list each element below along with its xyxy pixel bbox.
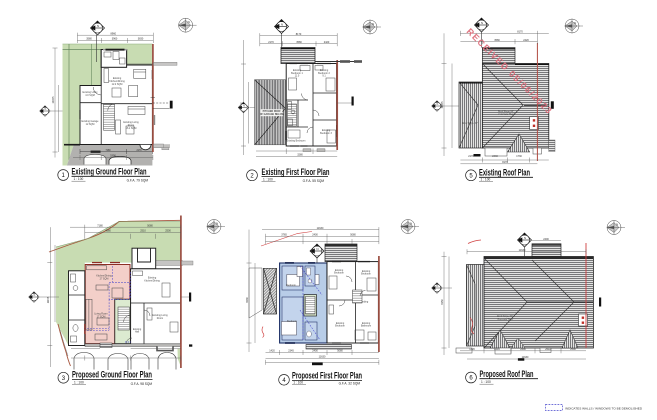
svg-text:3765: 3765 — [281, 234, 287, 237]
svg-text:4.0 SQM: 4.0 SQM — [85, 94, 94, 97]
svg-text:2500: 2500 — [570, 348, 576, 351]
svg-text:Bedroom: Bedroom — [286, 284, 296, 287]
svg-text:3830: 3830 — [138, 38, 144, 41]
svg-text:10155: 10155 — [52, 96, 55, 104]
svg-text:8170: 8170 — [517, 31, 523, 34]
svg-text:12.2 SQM: 12.2 SQM — [112, 83, 123, 86]
svg-text:Bedroom: Bedroom — [287, 320, 297, 323]
svg-text:5390: 5390 — [110, 155, 116, 158]
svg-text:2400: 2400 — [520, 348, 526, 351]
svg-text:1 : 100: 1 : 100 — [481, 178, 491, 182]
svg-text:1420: 1420 — [469, 348, 475, 351]
svg-text:7180: 7180 — [97, 224, 103, 227]
svg-text:OF GARAGE BELOW: OF GARAGE BELOW — [260, 113, 285, 116]
svg-text:G.F.A. 55 SQM: G.F.A. 55 SQM — [303, 179, 325, 183]
svg-text:G.F.A. 98 SQM: G.F.A. 98 SQM — [131, 382, 153, 386]
svg-text:2170: 2170 — [268, 41, 274, 44]
svg-text:3580: 3580 — [86, 38, 92, 41]
svg-text:8170: 8170 — [296, 33, 302, 36]
svg-text:3580: 3580 — [296, 41, 302, 44]
svg-text:11630: 11630 — [319, 356, 326, 359]
svg-text:Existing First Floor Plan: Existing First Floor Plan — [262, 167, 330, 177]
svg-text:11630: 11630 — [519, 249, 526, 252]
svg-text:2170: 2170 — [468, 155, 474, 158]
svg-text:1 : 100: 1 : 100 — [74, 177, 84, 181]
svg-text:10155: 10155 — [441, 101, 444, 109]
svg-text:3280: 3280 — [297, 154, 303, 157]
svg-text:2345: 2345 — [288, 350, 294, 353]
svg-text:Bedroom: Bedroom — [361, 273, 371, 276]
svg-text:Concrete Tiles: Concrete Tiles — [498, 113, 514, 116]
svg-text:Bathroom: Bathroom — [361, 325, 371, 328]
svg-text:8170: 8170 — [502, 161, 508, 164]
svg-text:1730: 1730 — [516, 155, 522, 158]
svg-text:5080: 5080 — [350, 234, 356, 237]
svg-text:INDICATES WALLS / WINDOWS TO B: INDICATES WALLS / WINDOWS TO BE DEMOLISH… — [565, 407, 643, 411]
svg-text:G.F.A. 79 SQM: G.F.A. 79 SQM — [127, 179, 149, 183]
svg-text:16.1 SQM: 16.1 SQM — [126, 127, 137, 130]
svg-text:3580: 3580 — [494, 39, 500, 42]
svg-text:Concrete Tiles: Concrete Tiles — [497, 318, 513, 321]
svg-text:2510: 2510 — [140, 230, 146, 233]
svg-text:Bedroom: Bedroom — [335, 325, 345, 328]
svg-text:3960: 3960 — [112, 38, 118, 41]
svg-text:27 SQM: 27 SQM — [100, 278, 109, 281]
svg-text:Proposed First Floor Plan: Proposed First Floor Plan — [292, 370, 362, 380]
svg-text:2400: 2400 — [312, 234, 318, 237]
svg-text:8960: 8960 — [111, 32, 117, 35]
svg-text:9150: 9150 — [441, 299, 444, 305]
svg-text:2420: 2420 — [324, 41, 330, 44]
svg-text:Existing Roof Plan: Existing Roof Plan — [479, 167, 530, 177]
svg-text:Roof Slope 30°: Roof Slope 30° — [462, 122, 478, 125]
svg-text:Existing Bedroom: Existing Bedroom — [287, 140, 306, 143]
svg-text:5080: 5080 — [147, 224, 153, 227]
svg-text:Existing Ground Floor Plan: Existing Ground Floor Plan — [72, 167, 147, 177]
svg-text:2420: 2420 — [523, 39, 529, 42]
svg-text:2510: 2510 — [545, 348, 551, 351]
svg-text:Proposed Ground Floor Plan: Proposed Ground Floor Plan — [72, 370, 152, 380]
svg-text:2400: 2400 — [543, 238, 549, 241]
svg-text:Bedroom 3: Bedroom 3 — [320, 132, 332, 135]
svg-text:Hall: Hall — [135, 331, 140, 334]
svg-text:4580: 4580 — [105, 230, 111, 233]
svg-text:7180: 7180 — [105, 150, 111, 152]
svg-text:2500: 2500 — [165, 230, 171, 233]
svg-text:12 SQM: 12 SQM — [86, 123, 95, 126]
svg-text:1 : 100: 1 : 100 — [481, 380, 491, 384]
svg-text:Room: Room — [157, 317, 163, 320]
svg-text:Bedroom: Bedroom — [334, 272, 344, 275]
svg-text:2440: 2440 — [492, 155, 498, 158]
svg-text:Kitchen/Dining: Kitchen/Dining — [144, 279, 160, 282]
svg-text:1 : 100: 1 : 100 — [263, 178, 273, 182]
svg-text:1 : 100: 1 : 100 — [74, 380, 84, 384]
svg-text:2345: 2345 — [494, 348, 500, 351]
svg-text:9230: 9230 — [246, 297, 249, 303]
svg-text:5080: 5080 — [337, 350, 343, 353]
svg-text:G.F.A. 32 SQM: G.F.A. 32 SQM — [339, 382, 361, 386]
svg-text:1 : 100: 1 : 100 — [293, 381, 303, 385]
svg-text:2170: 2170 — [136, 150, 142, 152]
svg-text:1420: 1420 — [269, 350, 275, 353]
svg-text:2400: 2400 — [312, 350, 318, 353]
svg-text:Proposed Roof Plan: Proposed Roof Plan — [480, 369, 534, 379]
svg-text:11630: 11630 — [317, 227, 324, 230]
svg-text:11.0: 11.0 — [295, 75, 300, 78]
